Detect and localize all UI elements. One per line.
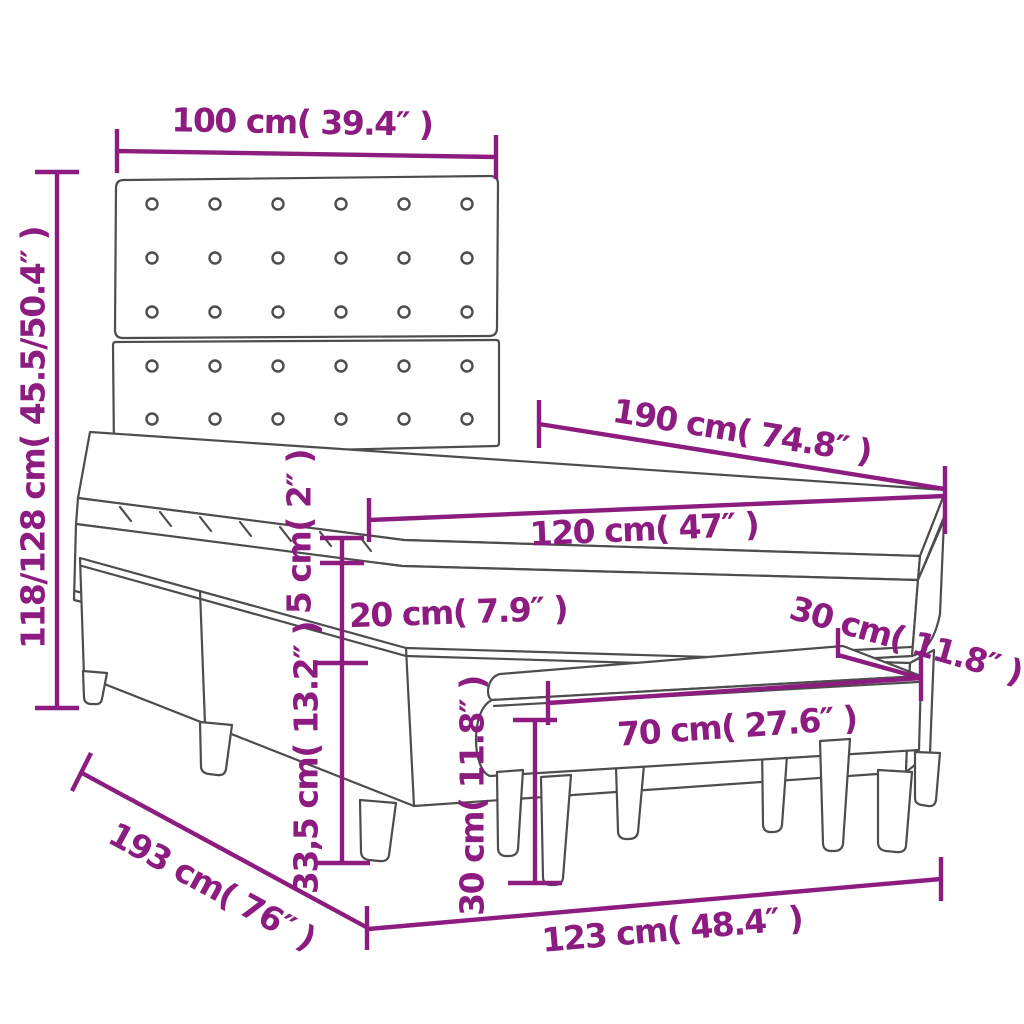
headboard-button: [273, 414, 284, 425]
headboard-button: [273, 253, 284, 264]
bench-leg: [616, 765, 644, 839]
headboard-button: [210, 199, 221, 210]
bed-leg: [360, 800, 396, 861]
headboard-button: [210, 253, 221, 264]
headboard-button: [399, 199, 410, 210]
headboard-button: [399, 307, 410, 318]
dim-bed-height: 118/128 cm( 45.5/50.4″ ): [14, 172, 80, 708]
headboard-button: [147, 307, 158, 318]
headboard-button: [462, 199, 473, 210]
headboard-button: [273, 307, 284, 318]
headboard-button: [336, 199, 347, 210]
base-height-label: 33,5 cm( 13.2″ ): [287, 622, 326, 894]
topper-thickness-label: 5 cm( 2″ ): [280, 450, 319, 614]
headboard-button: [462, 361, 473, 372]
headboard-button: [336, 253, 347, 264]
bed-width-label: 123 cm( 48.4″ ): [540, 898, 804, 960]
mattress-length-label: 190 cm( 74.8″ ): [610, 391, 874, 471]
headboard-button: [399, 253, 410, 264]
headboard-button: [210, 361, 221, 372]
bench-leg: [820, 739, 850, 851]
headboard: [113, 176, 499, 455]
diagram-canvas: 100 cm( 39.4″ ) 118/128 cm( 45.5/50.4″ )…: [0, 0, 1024, 1024]
dim-headboard-width: 100 cm( 39.4″ ): [117, 100, 496, 179]
bed-leg: [878, 770, 912, 852]
headboard-button: [147, 414, 158, 425]
headboard-button: [210, 414, 221, 425]
bench-leg: [497, 770, 523, 856]
bench-leg: [541, 775, 571, 885]
mattress-thickness-label: 20 cm( 7.9″ ): [348, 589, 567, 636]
headboard-upper-panel: [115, 176, 498, 338]
headboard-button: [336, 307, 347, 318]
bed-leg: [200, 722, 232, 775]
headboard-button: [147, 199, 158, 210]
bed-height-label: 118/128 cm( 45.5/50.4″ ): [14, 227, 53, 649]
bed-leg: [83, 671, 107, 704]
headboard-width-label: 100 cm( 39.4″ ): [171, 100, 433, 144]
headboard-button: [273, 361, 284, 372]
headboard-button: [462, 307, 473, 318]
headboard-button: [336, 414, 347, 425]
bed-dimension-diagram: 100 cm( 39.4″ ) 118/128 cm( 45.5/50.4″ )…: [0, 0, 1024, 1024]
headboard-button: [462, 414, 473, 425]
headboard-button: [210, 307, 221, 318]
headboard-button: [147, 253, 158, 264]
headboard-button: [273, 199, 284, 210]
headboard-button: [336, 361, 347, 372]
headboard-button: [147, 361, 158, 372]
bench-height-label: 30 cm( 11.8″ ): [453, 676, 492, 916]
headboard-button: [399, 414, 410, 425]
headboard-button: [399, 361, 410, 372]
headboard-button: [462, 253, 473, 264]
bed-leg: [915, 752, 940, 806]
